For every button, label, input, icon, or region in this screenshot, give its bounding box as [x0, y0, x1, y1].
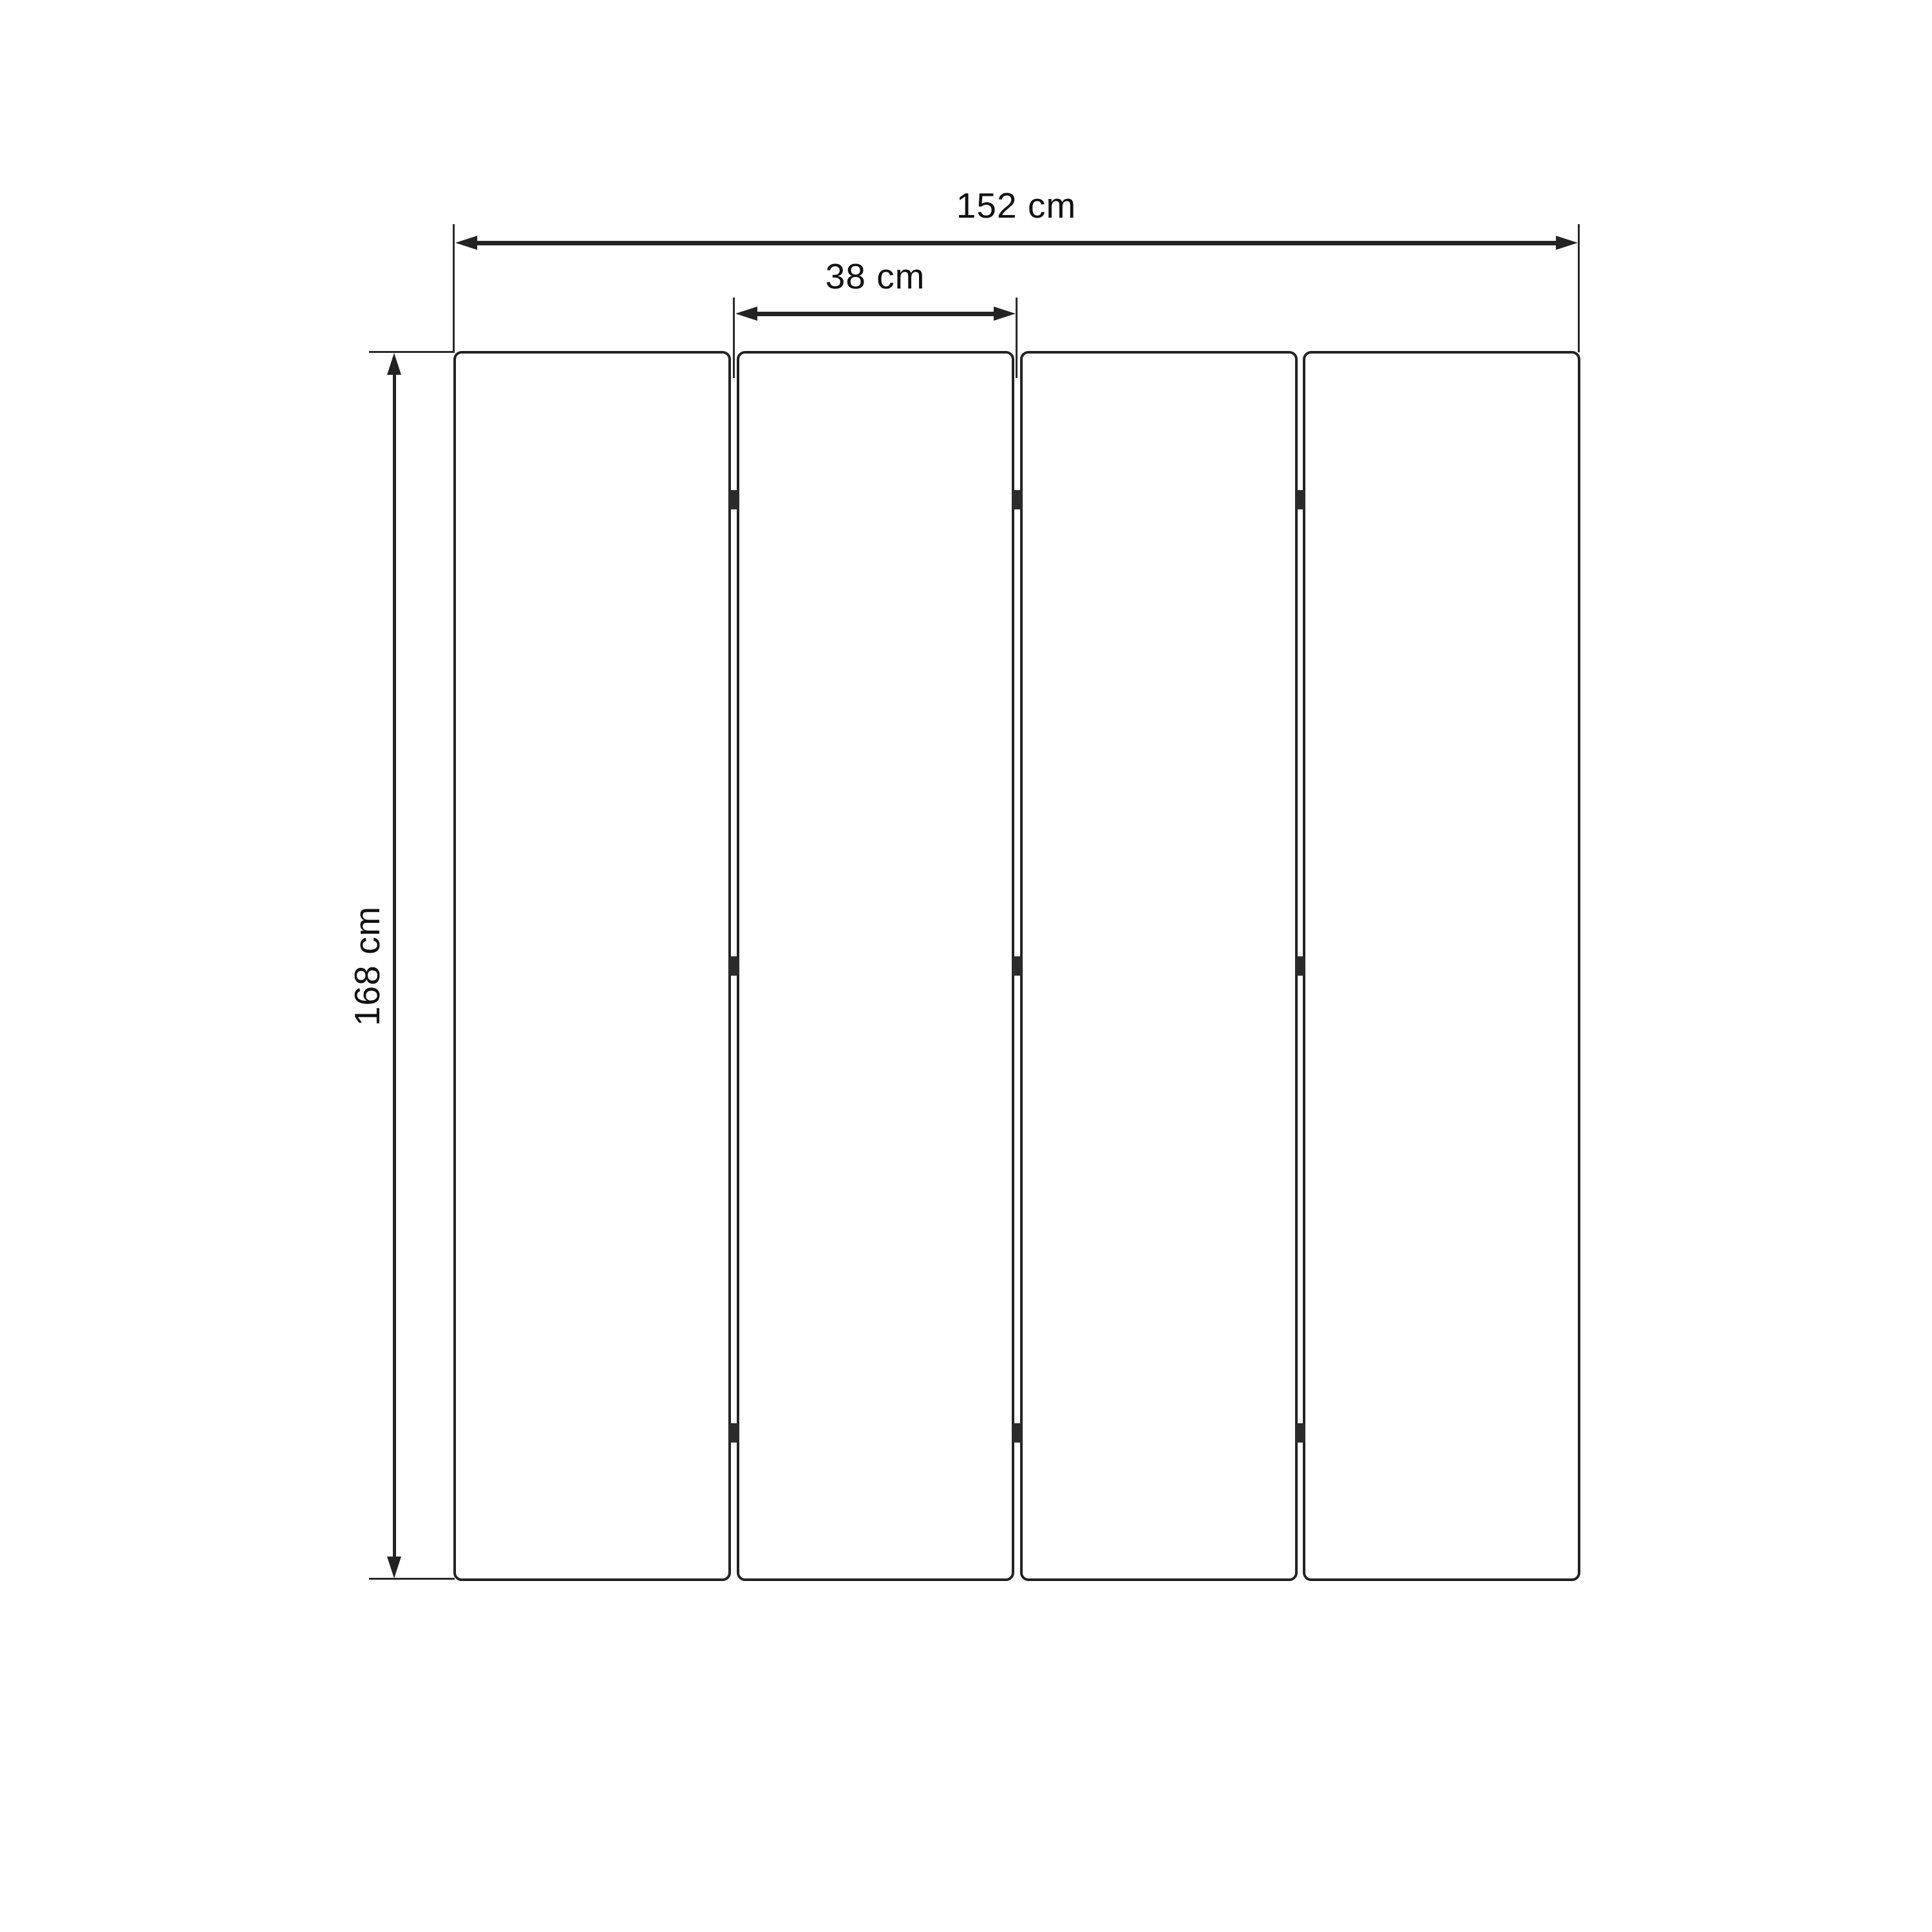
hinge-gap2-bottom — [1012, 1423, 1022, 1443]
height-dimension-line — [393, 367, 396, 1566]
panel-width-label: 38 cm — [746, 256, 1004, 296]
extension-line-height-top — [369, 351, 455, 353]
total-width-label: 152 cm — [887, 185, 1145, 225]
hinge-gap1-bottom — [729, 1423, 739, 1443]
extension-line-total-width-right — [1578, 224, 1580, 352]
panel-width-arrowhead-right-icon — [994, 307, 1016, 321]
hinge-gap2-top — [1012, 490, 1022, 509]
height-label: 168 cm — [347, 837, 387, 1095]
panel-width-dimension-line — [747, 312, 1003, 316]
hinge-gap1-top — [729, 490, 739, 509]
hinge-gap2-middle — [1012, 956, 1022, 976]
total-width-arrowhead-right-icon — [1556, 236, 1578, 250]
height-arrowhead-bottom-icon — [387, 1557, 401, 1578]
extension-line-panel-width-right — [1016, 298, 1018, 378]
height-arrowhead-top-icon — [387, 353, 401, 375]
panel-width-arrowhead-left-icon — [735, 307, 757, 321]
hinge-gap3-bottom — [1296, 1423, 1305, 1443]
extension-line-total-width-left — [453, 224, 455, 352]
panel-3 — [1020, 351, 1298, 1581]
panel-4 — [1303, 351, 1580, 1581]
dimension-diagram: 152 cm 38 cm 168 cm — [0, 0, 1932, 1932]
panel-1 — [453, 351, 731, 1581]
panel-2 — [737, 351, 1014, 1581]
hinge-gap1-middle — [729, 956, 739, 976]
total-width-arrowhead-left-icon — [455, 236, 477, 250]
total-width-dimension-line — [470, 241, 1562, 245]
hinge-gap3-middle — [1296, 956, 1305, 976]
extension-line-height-bottom — [369, 1578, 455, 1580]
extension-line-panel-width-left — [733, 298, 735, 378]
hinge-gap3-top — [1296, 490, 1305, 509]
